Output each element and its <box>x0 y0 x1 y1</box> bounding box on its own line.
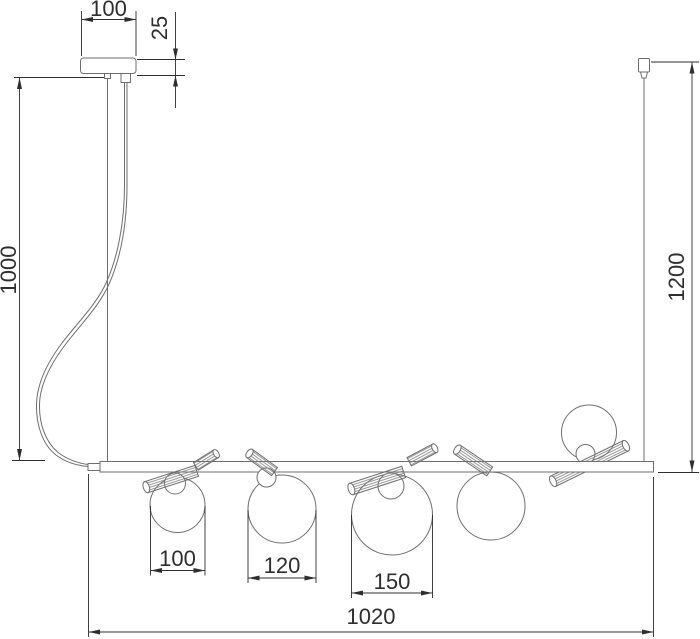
bar-left-connector <box>88 464 100 471</box>
arrow-down-icon <box>17 449 22 461</box>
globe-120-right <box>457 472 525 540</box>
arrow-left-icon <box>89 630 101 635</box>
ceiling-canopy <box>81 58 137 83</box>
dim-label-bar-length: 1020 <box>347 604 396 629</box>
arrow-left-icon <box>352 591 364 596</box>
canopy-wire-holder <box>121 74 131 83</box>
arrow-right-icon <box>305 576 317 581</box>
arrow-up-icon <box>690 62 695 74</box>
arrow-up-icon <box>17 78 22 90</box>
globes <box>150 468 525 555</box>
dim-label-canopy-width: 100 <box>90 0 127 21</box>
dim-canopy-height: 25 <box>137 12 185 108</box>
dim-label-overall-height: 1200 <box>664 253 689 302</box>
arrow-right-icon <box>421 591 433 596</box>
gripper-tip <box>641 72 648 78</box>
fixture-bar <box>88 462 654 473</box>
dimension-drawing: 100 25 1000 1200 100 <box>0 0 700 639</box>
arrow-right-icon <box>642 630 654 635</box>
dim-label-suspension-length: 1000 <box>0 246 21 295</box>
dim-canopy-width: 100 <box>82 0 137 56</box>
canopy-body <box>81 58 137 74</box>
dim-suspension-length: 1000 <box>0 78 104 461</box>
arrow-down-icon <box>690 461 695 473</box>
power-cord-inner <box>39 83 127 465</box>
dim-label-globe-small: 100 <box>159 546 196 571</box>
suspension-wires <box>36 78 644 467</box>
gripper-body <box>639 59 650 73</box>
arrow-down-icon <box>173 49 178 60</box>
cable-gripper <box>639 59 650 79</box>
drawing-canvas: 100 25 1000 1200 100 <box>0 0 700 639</box>
dim-overall-height: 1200 <box>651 62 699 473</box>
dim-label-canopy-height: 25 <box>147 16 172 40</box>
globe-120 <box>248 475 316 543</box>
canopy-cord-nipple <box>105 74 111 79</box>
dim-label-globe-medium: 120 <box>264 553 301 578</box>
arrow-left-icon <box>248 576 260 581</box>
dim-label-globe-large: 150 <box>374 569 411 594</box>
arrow-up-icon <box>173 76 178 87</box>
power-cord-outer <box>36 83 124 467</box>
right-top-globe-group <box>548 405 631 488</box>
